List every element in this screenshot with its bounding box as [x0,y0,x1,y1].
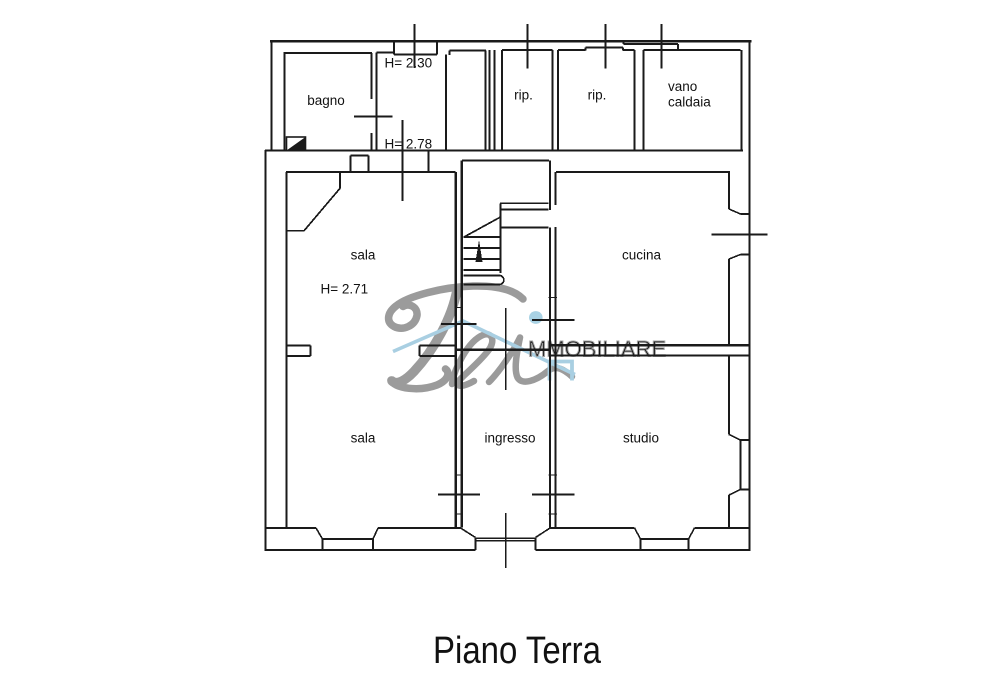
svg-text:caldaia: caldaia [668,95,711,110]
svg-text:studio: studio [623,431,659,446]
svg-text:ingresso: ingresso [484,431,535,446]
svg-text:bagno: bagno [307,93,345,108]
svg-text:rip.: rip. [588,88,607,103]
svg-text:sala: sala [351,431,376,446]
svg-text:cucina: cucina [622,248,662,263]
svg-text:H= 2.30: H= 2.30 [385,56,433,71]
svg-text:vano: vano [668,79,697,94]
svg-text:sala: sala [351,248,376,263]
svg-text:H= 2.71: H= 2.71 [321,282,369,297]
svg-text:Piano Terra: Piano Terra [433,630,602,672]
svg-text:H= 2.78: H= 2.78 [385,137,433,152]
svg-text:rip.: rip. [514,88,533,103]
